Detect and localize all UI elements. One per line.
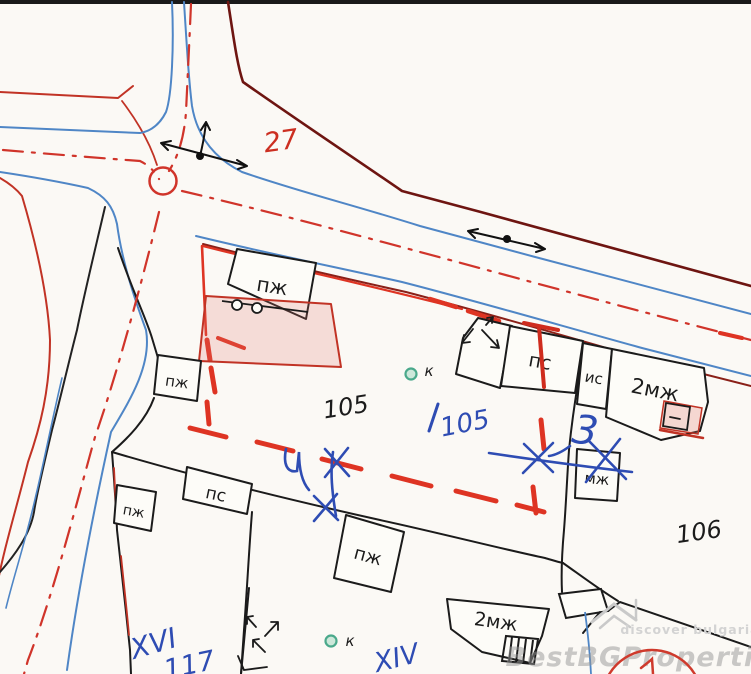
scanned-cadastral-map: пж пс ис [0,0,751,674]
watermark-brand: BestBGProperties [506,642,751,673]
building-label: пж [164,371,190,392]
well-icon [326,636,337,647]
road-number-label: 27 [262,124,300,159]
well-label: к [345,632,354,650]
well-label: к [424,362,433,380]
map-canvas: пж пс ис [0,0,751,674]
building-label: пж [255,272,289,301]
building-label: ис [583,368,604,389]
building-mzh: мж [575,449,620,501]
scan-edge [0,0,751,4]
watermark-tagline: discover bulgaria [620,622,751,637]
well-icon [406,369,417,380]
building-pzh-left: пж [154,355,201,401]
building-pzh-left2: пж [114,485,156,531]
building-label: пс [204,483,228,507]
